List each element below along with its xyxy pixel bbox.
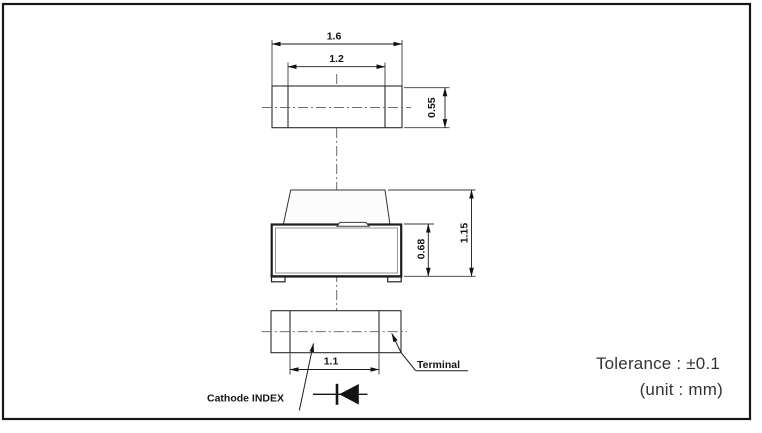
technical-drawing-canvas: 1.6 1.2 0.55	[0, 0, 762, 433]
unit-note: (unit : mm)	[640, 380, 723, 399]
dimension-value-0.68: 0.68	[416, 239, 428, 260]
dimension-value-1.6: 1.6	[327, 31, 342, 43]
cathode-diode-icon	[313, 384, 368, 405]
bottom-view: 1.1 Cathode INDEX Terminal	[207, 311, 468, 411]
cathode-index-label: Cathode INDEX	[207, 393, 284, 405]
dimension-value-0.55: 0.55	[426, 97, 438, 118]
dimension-body-height: 0.68	[404, 224, 434, 276]
dimension-terminal-span: 1.1	[290, 354, 379, 375]
notes-block: Tolerance : ±0.1 (unit : mm)	[596, 354, 723, 399]
dimension-value-1.2: 1.2	[329, 53, 344, 65]
cathode-index-callout: Cathode INDEX	[207, 344, 314, 411]
package-body	[272, 225, 402, 277]
cathode-leader-line	[299, 344, 313, 411]
lens-dome	[283, 190, 390, 225]
right-terminal-foot	[388, 277, 402, 282]
top-view-outline	[272, 86, 402, 128]
terminal-label: Terminal	[417, 359, 460, 371]
tolerance-note: Tolerance : ±0.1	[596, 354, 720, 373]
front-view: 0.68 1.15	[271, 190, 476, 282]
dimension-value-1.15: 1.15	[459, 223, 471, 244]
top-view: 1.6 1.2 0.55	[262, 31, 450, 128]
top-edge-notch	[337, 222, 369, 226]
terminal-callout: Terminal	[392, 334, 468, 372]
drawing-svg: 1.6 1.2 0.55	[0, 0, 762, 433]
dimension-value-1.1: 1.1	[324, 356, 339, 368]
diode-triangle	[339, 384, 359, 405]
left-terminal-foot	[272, 277, 286, 282]
